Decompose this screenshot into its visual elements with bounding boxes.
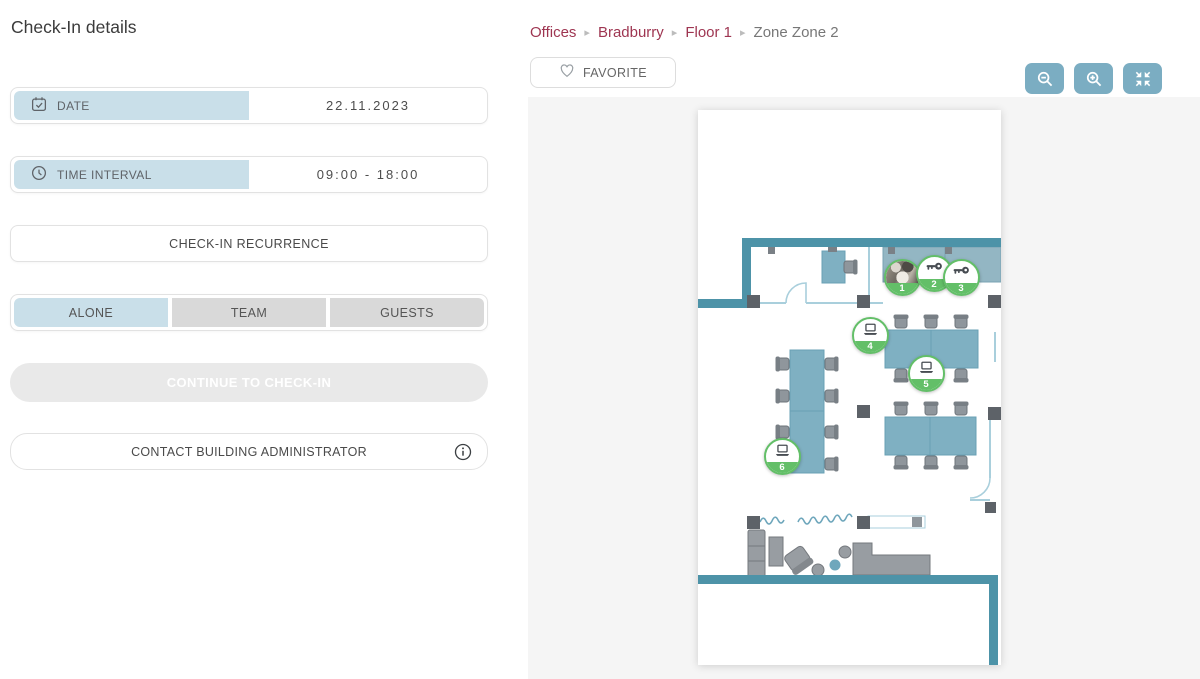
breadcrumb-offices[interactable]: Offices [530,24,576,41]
fit-view-icon-button[interactable] [1123,63,1162,94]
mode-team-button[interactable]: TEAM [172,298,326,327]
date-label: DATE [57,99,90,113]
breadcrumb-floor[interactable]: Floor 1 [685,24,732,41]
mode-guests-button[interactable]: GUESTS [330,298,484,327]
time-interval-label: TIME INTERVAL [57,168,152,182]
calendar-icon [30,95,48,116]
map-marker-6[interactable]: 6 [764,438,801,475]
heart-icon [559,63,575,82]
marker-number: 4 [854,341,887,352]
zoom-in-button[interactable] [1074,63,1113,94]
marker-number: 5 [910,379,943,390]
marker-number: 6 [766,462,799,473]
breadcrumb-building[interactable]: Bradburry [598,24,664,41]
date-label-block: DATE [14,91,249,120]
clock-icon [30,164,48,185]
laptop-icon [766,440,799,462]
contact-button-label: CONTACT BUILDING ADMINISTRATOR [131,445,367,459]
date-value[interactable]: 22.11.2023 [249,88,487,123]
continue-to-check-in-button[interactable]: CONTINUE TO CHECK-IN [10,363,488,402]
floor-plan-canvas[interactable]: 123456 [698,110,1001,665]
map-zoom-controls [1025,63,1162,94]
photo-avatar-icon [886,261,919,284]
breadcrumb-separator-icon: ▸ [584,26,590,39]
time-interval-value[interactable]: 09:00 - 18:00 [249,157,487,192]
breadcrumb: Offices ▸ Bradburry ▸ Floor 1 ▸ Zone Zon… [530,24,839,41]
info-icon [453,442,473,462]
attendance-mode-switch: ALONE TEAM GUESTS [10,294,488,331]
map-marker-4[interactable]: 4 [852,317,889,354]
map-marker-3[interactable]: 3 [943,259,980,296]
breadcrumb-zone: Zone Zone 2 [754,24,839,41]
date-field[interactable]: DATE 22.11.2023 [10,87,488,124]
favorite-button-label: FAVORITE [583,66,647,80]
marker-number: 1 [886,283,919,294]
mode-alone-button[interactable]: ALONE [14,298,168,327]
laptop-icon [910,357,943,379]
floor-map-panel: 123456 [528,97,1200,679]
check-in-panel: Check-In details DATE 22.11.2023 TIME IN… [10,0,488,679]
breadcrumb-separator-icon: ▸ [740,26,746,39]
page-title: Check-In details [11,17,136,38]
check-in-recurrence-button[interactable]: CHECK-IN RECURRENCE [10,225,488,262]
time-interval-field[interactable]: TIME INTERVAL 09:00 - 18:00 [10,156,488,193]
contact-building-administrator-button[interactable]: CONTACT BUILDING ADMINISTRATOR [10,433,488,470]
laptop-icon [854,319,887,341]
marker-number: 3 [945,283,978,294]
time-label-block: TIME INTERVAL [14,160,249,189]
map-marker-5[interactable]: 5 [908,355,945,392]
floor-plan-drawing [698,110,1001,665]
breadcrumb-separator-icon: ▸ [672,26,678,39]
map-marker-1[interactable]: 1 [884,259,921,296]
favorite-button[interactable]: FAVORITE [530,57,676,88]
zoom-out-button[interactable] [1025,63,1064,94]
key-icon [945,261,978,283]
